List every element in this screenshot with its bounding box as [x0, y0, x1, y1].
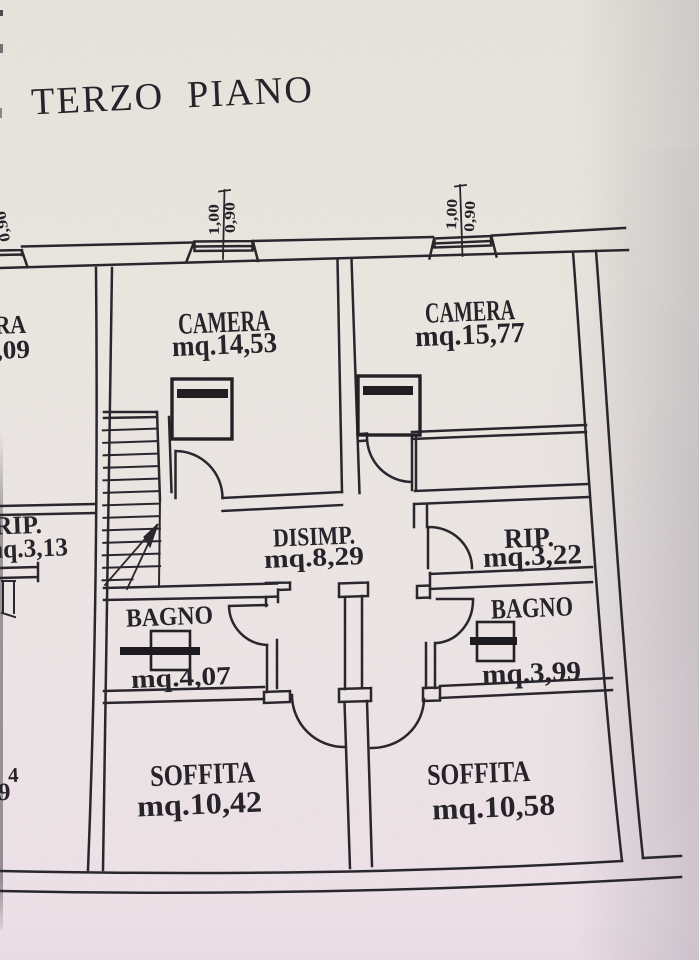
svg-text:mq.3,13: mq.3,13 — [0, 532, 68, 564]
svg-text:BAGNO: BAGNO — [125, 600, 213, 632]
svg-text:1,00: 1,00 — [444, 199, 461, 231]
svg-text:mq.15,77: mq.15,77 — [414, 317, 525, 353]
svg-text:mq.14,09: mq.14,09 — [0, 335, 30, 368]
svg-text:mq.3,99: mq.3,99 — [481, 656, 581, 691]
svg-text:9: 9 — [0, 779, 11, 806]
svg-text:mq.10,42: mq.10,42 — [136, 786, 262, 824]
svg-text:mq.14,53: mq.14,53 — [171, 327, 277, 363]
svg-text:mq.8,29: mq.8,29 — [263, 541, 364, 574]
svg-text:0,90: 0,90 — [462, 201, 479, 233]
svg-text:mq.4,07: mq.4,07 — [130, 661, 231, 694]
svg-text:mq.3,22: mq.3,22 — [482, 539, 582, 574]
svg-text:BAGNO: BAGNO — [490, 591, 573, 625]
svg-text:SOFFITA: SOFFITA — [426, 755, 531, 792]
svg-text:mq.10,58: mq.10,58 — [431, 789, 555, 827]
svg-text:0,90: 0,90 — [222, 202, 239, 233]
svg-text:1,00: 1,00 — [206, 204, 223, 235]
